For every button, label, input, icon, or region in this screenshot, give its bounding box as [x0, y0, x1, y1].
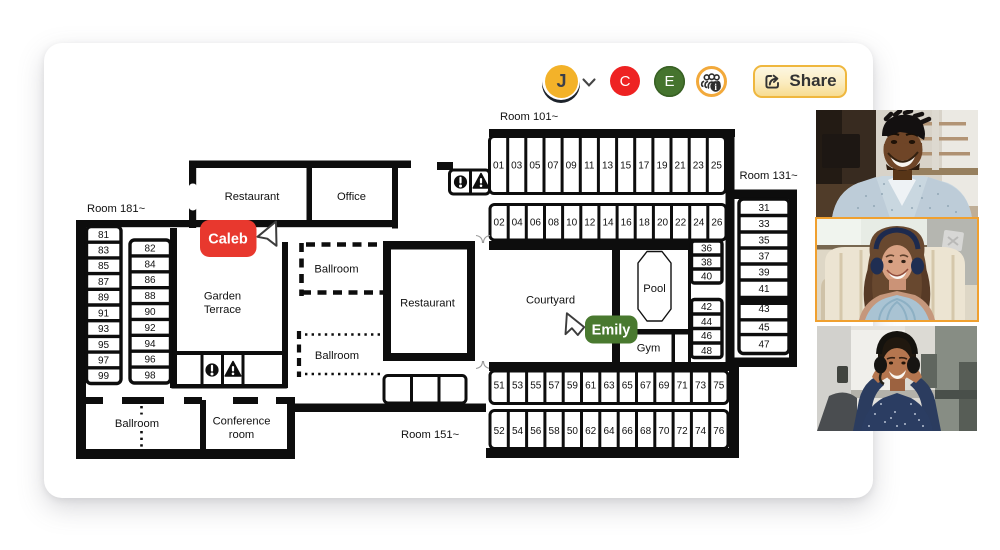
svg-text:03: 03	[511, 161, 523, 172]
svg-text:68: 68	[640, 426, 652, 437]
svg-text:83: 83	[98, 246, 110, 257]
svg-text:45: 45	[758, 323, 770, 334]
svg-text:38: 38	[701, 258, 713, 269]
svg-text:98: 98	[144, 371, 156, 382]
svg-text:86: 86	[144, 275, 156, 286]
svg-text:17: 17	[638, 161, 650, 172]
svg-text:Office: Office	[337, 191, 366, 203]
svg-text:64: 64	[603, 426, 615, 437]
svg-text:96: 96	[144, 355, 156, 366]
svg-text:95: 95	[98, 340, 110, 351]
svg-text:01: 01	[493, 161, 505, 172]
svg-text:89: 89	[98, 293, 110, 304]
svg-text:43: 43	[758, 304, 770, 315]
svg-text:51: 51	[494, 381, 506, 392]
svg-text:Gym: Gym	[637, 343, 661, 355]
svg-text:12: 12	[584, 218, 596, 229]
svg-text:97: 97	[98, 355, 110, 366]
svg-text:18: 18	[639, 218, 651, 229]
svg-text:24: 24	[693, 218, 705, 229]
svg-text:31: 31	[758, 203, 770, 214]
svg-text:40: 40	[701, 272, 713, 283]
svg-text:44: 44	[701, 317, 713, 328]
svg-text:22: 22	[675, 218, 687, 229]
svg-text:92: 92	[144, 323, 156, 334]
svg-text:66: 66	[622, 426, 634, 437]
svg-text:61: 61	[585, 381, 597, 392]
svg-text:63: 63	[603, 381, 615, 392]
svg-text:Room 131~: Room 131~	[740, 170, 799, 182]
svg-text:87: 87	[98, 277, 110, 288]
svg-text:57: 57	[549, 381, 561, 392]
svg-text:59: 59	[567, 381, 579, 392]
svg-text:85: 85	[98, 261, 110, 272]
svg-text:84: 84	[144, 259, 156, 270]
svg-text:09: 09	[566, 161, 578, 172]
svg-text:50: 50	[567, 426, 579, 437]
svg-text:23: 23	[693, 161, 705, 172]
svg-text:04: 04	[512, 218, 524, 229]
svg-text:52: 52	[494, 426, 506, 437]
svg-text:05: 05	[529, 161, 541, 172]
svg-text:16: 16	[621, 218, 633, 229]
svg-text:42: 42	[701, 302, 713, 313]
svg-text:08: 08	[548, 218, 560, 229]
svg-text:07: 07	[547, 161, 559, 172]
svg-text:13: 13	[602, 161, 614, 172]
svg-text:Caleb: Caleb	[208, 232, 248, 248]
svg-text:35: 35	[758, 236, 770, 247]
svg-text:74: 74	[695, 426, 707, 437]
svg-text:26: 26	[711, 218, 723, 229]
svg-text:62: 62	[585, 426, 597, 437]
svg-text:Ballroom: Ballroom	[315, 350, 359, 362]
svg-text:73: 73	[695, 381, 707, 392]
svg-text:36: 36	[701, 244, 713, 255]
svg-text:Ballroom: Ballroom	[314, 264, 358, 276]
svg-text:15: 15	[620, 161, 632, 172]
svg-text:90: 90	[144, 307, 156, 318]
svg-text:72: 72	[677, 426, 689, 437]
svg-text:71: 71	[677, 381, 689, 392]
svg-text:58: 58	[549, 426, 561, 437]
svg-text:48: 48	[701, 346, 713, 357]
svg-text:69: 69	[658, 381, 670, 392]
svg-text:Room 101~: Room 101~	[500, 111, 559, 123]
svg-text:55: 55	[530, 381, 542, 392]
svg-text:56: 56	[530, 426, 542, 437]
svg-text:Courtyard: Courtyard	[526, 295, 575, 307]
svg-text:88: 88	[144, 291, 156, 302]
svg-text:25: 25	[711, 161, 723, 172]
svg-text:81: 81	[98, 230, 110, 241]
svg-text:67: 67	[640, 381, 652, 392]
svg-text:Pool: Pool	[643, 283, 665, 295]
svg-text:39: 39	[758, 268, 770, 279]
svg-text:10: 10	[566, 218, 578, 229]
svg-text:47: 47	[758, 340, 770, 351]
svg-text:20: 20	[657, 218, 669, 229]
svg-text:Ballroom: Ballroom	[115, 418, 159, 430]
svg-text:02: 02	[494, 218, 506, 229]
svg-text:Emily: Emily	[592, 323, 631, 339]
svg-text:99: 99	[98, 371, 110, 382]
svg-text:54: 54	[512, 426, 524, 437]
svg-text:21: 21	[675, 161, 687, 172]
svg-text:Terrace: Terrace	[204, 304, 241, 316]
svg-text:65: 65	[622, 381, 634, 392]
svg-text:93: 93	[98, 324, 110, 335]
svg-text:Garden: Garden	[204, 291, 241, 303]
svg-text:91: 91	[98, 308, 110, 319]
svg-text:82: 82	[144, 243, 156, 254]
svg-text:53: 53	[512, 381, 524, 392]
svg-text:94: 94	[144, 339, 156, 350]
svg-text:76: 76	[713, 426, 725, 437]
svg-text:Restaurant: Restaurant	[400, 298, 456, 310]
svg-text:46: 46	[701, 331, 713, 342]
svg-text:41: 41	[758, 284, 770, 295]
svg-text:75: 75	[713, 381, 725, 392]
svg-text:33: 33	[758, 219, 770, 230]
svg-text:Conference: Conference	[213, 416, 271, 428]
svg-text:70: 70	[658, 426, 670, 437]
svg-text:37: 37	[758, 252, 770, 263]
svg-text:19: 19	[656, 161, 668, 172]
svg-text:14: 14	[602, 218, 614, 229]
svg-text:Room 151~: Room 151~	[401, 429, 460, 441]
svg-text:Restaurant: Restaurant	[225, 191, 281, 203]
svg-text:06: 06	[530, 218, 542, 229]
svg-text:Room 181~: Room 181~	[87, 203, 146, 215]
svg-text:11: 11	[584, 161, 595, 172]
svg-text:room: room	[229, 429, 255, 441]
